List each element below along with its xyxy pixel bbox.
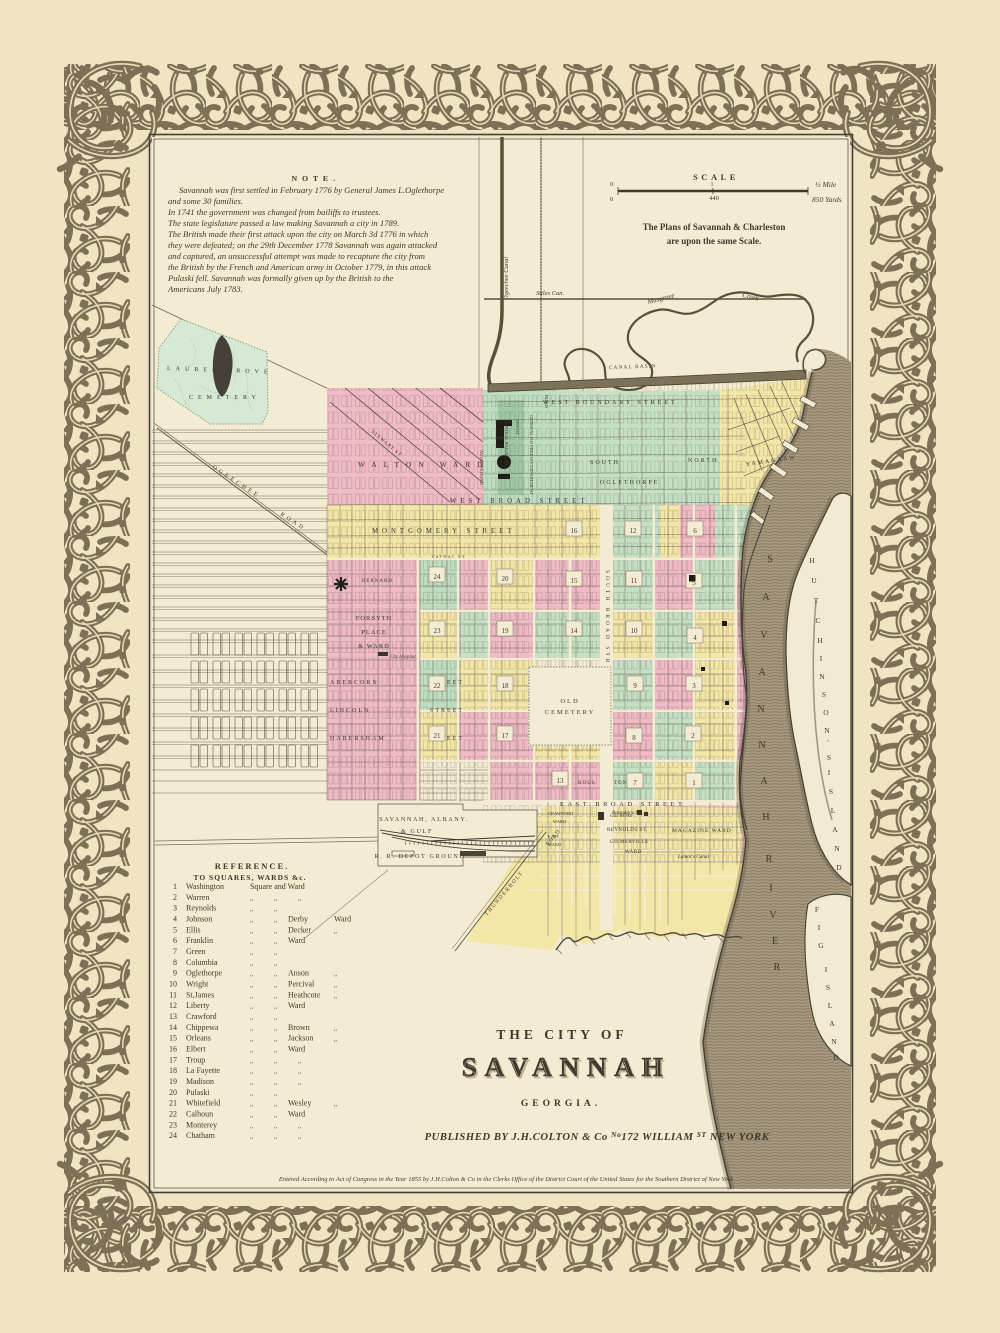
svg-text:24: 24: [169, 1131, 177, 1140]
svg-text:,,: ,,: [250, 1112, 254, 1118]
svg-text:GILMERVILLE: GILMERVILLE: [610, 840, 649, 845]
svg-text:17: 17: [169, 1055, 177, 1064]
svg-text:6: 6: [693, 527, 697, 535]
svg-text:Americans July 1783.: Americans July 1783.: [167, 284, 243, 294]
svg-text:E: E: [772, 936, 778, 947]
svg-text:SAVANNAH, ALBANY.: SAVANNAH, ALBANY.: [379, 816, 469, 823]
svg-text:17: 17: [502, 732, 510, 740]
svg-text:,,: ,,: [274, 1037, 278, 1043]
svg-text:ABERCORN: ABERCORN: [330, 680, 379, 686]
svg-text:Stiles Can.: Stiles Can.: [536, 290, 565, 297]
svg-text:,,: ,,: [250, 961, 254, 967]
svg-text:S: S: [822, 690, 826, 699]
svg-text:11: 11: [631, 577, 638, 585]
svg-text:,,: ,,: [334, 928, 338, 934]
svg-text:R: R: [774, 962, 781, 973]
svg-text:3: 3: [173, 904, 177, 913]
svg-text:Liberty: Liberty: [186, 1001, 210, 1010]
svg-text:20: 20: [169, 1088, 177, 1097]
svg-text:EAST BROAD STREET: EAST BROAD STREET: [560, 801, 685, 808]
svg-text:N O T E .: N O T E .: [291, 174, 336, 183]
svg-text:are upon the same Scale.: are upon the same Scale.: [667, 236, 762, 246]
svg-text:WARD: WARD: [553, 819, 567, 824]
svg-text:,,: ,,: [250, 1015, 254, 1021]
svg-text:½ Mile: ½ Mile: [815, 180, 837, 189]
svg-text:Ward: Ward: [288, 1109, 305, 1118]
svg-text:7: 7: [173, 947, 177, 956]
svg-text:CEMETERY: CEMETERY: [189, 395, 261, 401]
svg-text:V: V: [769, 910, 777, 921]
svg-text:R. R. DEPOT GROUND: R. R. DEPOT GROUND: [374, 853, 465, 860]
svg-text:Heathcote: Heathcote: [288, 990, 321, 999]
svg-text:19: 19: [502, 627, 510, 635]
svg-text:,,: ,,: [334, 993, 338, 999]
svg-text:2: 2: [173, 893, 177, 902]
svg-text:22: 22: [169, 1109, 177, 1118]
svg-text:,,: ,,: [274, 1102, 278, 1108]
svg-text:,,: ,,: [274, 950, 278, 956]
svg-text:Columbia: Columbia: [186, 958, 218, 967]
svg-text:DEPOT: DEPOT: [515, 420, 520, 435]
svg-text:Brown: Brown: [288, 1023, 310, 1032]
svg-text:23: 23: [434, 627, 442, 635]
svg-text:and some 30 families.: and some 30 families.: [168, 196, 243, 206]
svg-text:D: D: [833, 1053, 839, 1062]
svg-text:Ellis: Ellis: [186, 925, 201, 934]
svg-text:Wesley: Wesley: [288, 1099, 311, 1108]
svg-text:SCALE: SCALE: [693, 172, 739, 182]
svg-text:12: 12: [630, 527, 638, 535]
svg-text:La Fayette: La Fayette: [186, 1066, 220, 1075]
svg-text:R: R: [766, 854, 773, 865]
svg-text:GEORGIA.: GEORGIA.: [521, 1099, 601, 1109]
svg-text:Calhoun: Calhoun: [186, 1109, 213, 1118]
svg-text:H: H: [762, 812, 769, 823]
svg-text:FORSYTH: FORSYTH: [356, 615, 393, 622]
svg-text:5: 5: [173, 925, 177, 934]
svg-text:9: 9: [633, 682, 637, 690]
svg-text:L: L: [831, 806, 836, 815]
svg-text:,,: ,,: [274, 1069, 278, 1075]
svg-text:TO SQUARES, WARDS &c.: TO SQUARES, WARDS &c.: [193, 873, 306, 882]
svg-text:,,: ,,: [298, 1069, 302, 1075]
svg-text:Square and Ward: Square and Ward: [250, 882, 305, 891]
svg-text:SOUTH: SOUTH: [590, 460, 620, 466]
svg-text:15: 15: [571, 577, 579, 585]
svg-text:,,: ,,: [274, 1048, 278, 1054]
svg-text:SOUTH BROAD STR: SOUTH BROAD STR: [604, 570, 610, 665]
svg-text:18: 18: [169, 1066, 177, 1075]
svg-text:,,: ,,: [250, 918, 254, 924]
svg-text:PLACE: PLACE: [361, 629, 387, 636]
svg-text:In 1741 the government was cha: In 1741 the government was changed from …: [167, 207, 381, 217]
svg-text:,,: ,,: [298, 1058, 302, 1064]
svg-text:1: 1: [711, 182, 714, 188]
svg-text:14: 14: [169, 1023, 177, 1032]
svg-text:Jackson: Jackson: [288, 1034, 313, 1043]
svg-text:Whitefield: Whitefield: [186, 1099, 220, 1108]
svg-text:CENTRAL RAILROAD: CENTRAL RAILROAD: [504, 420, 509, 466]
svg-text:C: C: [815, 616, 820, 625]
svg-text:T: T: [814, 596, 819, 605]
svg-text:,,: ,,: [274, 1112, 278, 1118]
svg-text:REFERENCE.: REFERENCE.: [215, 861, 290, 871]
svg-text:,,: ,,: [250, 1048, 254, 1054]
svg-text:,,: ,,: [250, 1134, 254, 1140]
svg-text:St.James: St.James: [186, 990, 214, 999]
svg-text:they were defeated; on the 29t: they were defeated; on the 29th December…: [168, 240, 438, 250]
svg-text:4: 4: [693, 634, 697, 642]
svg-text:Elbert: Elbert: [186, 1045, 206, 1054]
svg-text:23: 23: [169, 1120, 177, 1129]
svg-text:BERNARD: BERNARD: [362, 579, 393, 584]
svg-text:N: N: [831, 1037, 837, 1046]
svg-text:V: V: [760, 630, 768, 641]
svg-text:S: S: [829, 787, 833, 796]
svg-text:Anson: Anson: [288, 969, 309, 978]
svg-text:,,: ,,: [250, 1091, 254, 1097]
svg-text:H: H: [817, 636, 823, 645]
svg-text:0: 0: [610, 196, 613, 203]
svg-text:,,: ,,: [250, 1004, 254, 1010]
svg-text:Pulaski: Pulaski: [186, 1088, 210, 1097]
svg-text:A: A: [762, 592, 770, 603]
svg-text:19: 19: [169, 1077, 177, 1086]
svg-text:CEMETERY: CEMETERY: [545, 709, 596, 716]
svg-text:10: 10: [631, 627, 639, 635]
svg-text:Washington: Washington: [186, 882, 224, 891]
svg-text:,,: ,,: [250, 972, 254, 978]
svg-text:,,: ,,: [250, 1037, 254, 1043]
svg-text:,,: ,,: [250, 993, 254, 999]
svg-text:Crawford: Crawford: [186, 1012, 217, 1021]
svg-text:4: 4: [173, 915, 177, 924]
svg-text:,,: ,,: [274, 1091, 278, 1097]
svg-text:A: A: [760, 776, 768, 787]
svg-text:,,: ,,: [250, 1102, 254, 1108]
svg-text:,,: ,,: [250, 950, 254, 956]
svg-text:10: 10: [169, 980, 177, 989]
svg-text:SAVANNAH: SAVANNAH: [462, 1051, 671, 1082]
svg-text:Decker: Decker: [288, 925, 311, 934]
svg-text:,,: ,,: [274, 1080, 278, 1086]
svg-text:N: N: [834, 844, 840, 853]
svg-text:,,: ,,: [250, 1080, 254, 1086]
svg-text:REYNOLDS ST.: REYNOLDS ST.: [607, 828, 648, 833]
svg-text:440: 440: [709, 195, 719, 202]
svg-text:MAGAZINE WARD: MAGAZINE WARD: [672, 828, 732, 834]
svg-text:,,: ,,: [334, 1102, 338, 1108]
svg-text:0: 0: [610, 181, 613, 188]
svg-text:,,: ,,: [298, 1080, 302, 1086]
svg-text:N: N: [757, 704, 764, 715]
svg-text:Boundary St.: Boundary St.: [612, 810, 641, 816]
svg-text:S: S: [826, 983, 830, 992]
svg-text:,,: ,,: [274, 1058, 278, 1064]
svg-text:,,: ,,: [250, 1123, 254, 1129]
svg-text:GENERAL R.R FREIGHT DEPARTMENT: GENERAL R.R FREIGHT DEPARTMENT: [529, 415, 534, 495]
svg-text:,,: ,,: [274, 928, 278, 934]
svg-text:,,: ,,: [274, 972, 278, 978]
svg-text:,,: ,,: [298, 896, 302, 902]
svg-text:,,: ,,: [298, 1134, 302, 1140]
svg-text:Ogeechee Canal: Ogeechee Canal: [503, 257, 510, 300]
svg-text:D: D: [836, 863, 842, 872]
svg-text:,,: ,,: [334, 983, 338, 989]
svg-text:WEST BROAD STREET: WEST BROAD STREET: [450, 498, 589, 505]
svg-text:City Hospital: City Hospital: [390, 655, 416, 660]
svg-text:A: A: [832, 825, 838, 834]
svg-text:H: H: [809, 556, 815, 565]
svg-text:HOUS: HOUS: [578, 781, 596, 786]
svg-text:and captured, an unsuccessful: and captured, an unsuccessful attempt wa…: [168, 251, 425, 261]
svg-text:Ward: Ward: [288, 1045, 305, 1054]
svg-text:WEST BOUNDARY STREET: WEST BOUNDARY STREET: [543, 400, 678, 406]
svg-text:Madison: Madison: [186, 1077, 214, 1086]
svg-text:O: O: [823, 708, 829, 717]
svg-text:7: 7: [633, 779, 637, 787]
svg-text:THE CITY OF: THE CITY OF: [496, 1027, 627, 1042]
svg-text:Ward: Ward: [288, 1001, 305, 1010]
svg-text:& WARD: & WARD: [358, 643, 390, 650]
svg-text:Lamar's Canal: Lamar's Canal: [677, 854, 710, 860]
svg-text:Oglethorpe: Oglethorpe: [186, 969, 222, 978]
svg-text:U: U: [811, 576, 817, 585]
svg-text:A: A: [829, 1019, 835, 1028]
svg-text:the British by the French and: the British by the French and American a…: [168, 262, 431, 272]
svg-text:Orleans: Orleans: [186, 1034, 211, 1043]
svg-text:EAST: EAST: [548, 834, 560, 839]
svg-text:,,: ,,: [250, 1026, 254, 1032]
svg-text:8: 8: [173, 958, 177, 967]
svg-text:,,: ,,: [250, 928, 254, 934]
svg-text:Johnson: Johnson: [186, 915, 212, 924]
svg-text:16: 16: [169, 1045, 177, 1054]
svg-text:WALTON WARD: WALTON WARD: [358, 460, 490, 469]
svg-text:Percival: Percival: [288, 980, 315, 989]
svg-text:I: I: [769, 883, 772, 894]
svg-text:,,: ,,: [334, 1037, 338, 1043]
svg-text:Ward: Ward: [288, 936, 305, 945]
svg-text:,,: ,,: [250, 983, 254, 989]
svg-text:S: S: [767, 554, 773, 565]
svg-text:L: L: [828, 1001, 833, 1010]
svg-text:,,: ,,: [274, 896, 278, 902]
svg-text:,,: ,,: [250, 907, 254, 913]
svg-text:Savannah was first settled in: Savannah was first settled in February 1…: [179, 185, 444, 195]
svg-text:2: 2: [691, 732, 695, 740]
svg-text:S: S: [827, 753, 831, 762]
svg-text:HABERSHAM: HABERSHAM: [330, 736, 386, 742]
svg-text:11: 11: [169, 990, 177, 999]
svg-text:13: 13: [557, 777, 565, 785]
svg-text:18: 18: [502, 682, 510, 690]
svg-text:,,: ,,: [274, 961, 278, 967]
svg-text:,,: ,,: [274, 907, 278, 913]
svg-text:,,: ,,: [250, 896, 254, 902]
svg-text:13: 13: [169, 1012, 177, 1021]
svg-text:,,: ,,: [274, 1015, 278, 1021]
svg-text:WARD: WARD: [625, 850, 642, 855]
svg-text:& GULF: & GULF: [401, 828, 433, 835]
svg-text:OLD: OLD: [560, 698, 579, 705]
svg-text:,,: ,,: [250, 1069, 254, 1075]
svg-text:,,: ,,: [274, 1026, 278, 1032]
svg-text:Chatham: Chatham: [186, 1131, 216, 1140]
svg-text:LINCOLN: LINCOLN: [330, 708, 370, 714]
svg-text:12: 12: [169, 1001, 177, 1010]
svg-text:N: N: [824, 726, 830, 735]
svg-text:1: 1: [692, 779, 696, 787]
svg-text:MONTGOMERY STREET: MONTGOMERY STREET: [372, 528, 515, 535]
svg-text:15: 15: [169, 1034, 177, 1043]
svg-text:,,: ,,: [334, 972, 338, 978]
svg-text:,,: ,,: [250, 1058, 254, 1064]
svg-text:Pulaski fell. Savannah was for: Pulaski fell. Savannah was formally give…: [167, 273, 394, 283]
svg-text:,,: ,,: [334, 1026, 338, 1032]
svg-text:850 Yards: 850 Yards: [812, 195, 842, 204]
svg-text:,,: ,,: [274, 939, 278, 945]
svg-text:The British made their first a: The British made their first attack upon…: [168, 229, 428, 239]
svg-text:14: 14: [571, 627, 579, 635]
svg-text:Franklin: Franklin: [186, 936, 213, 945]
svg-text:ROAD: ROAD: [544, 395, 549, 409]
svg-text:,,: ,,: [274, 918, 278, 924]
svg-text:F: F: [815, 905, 819, 914]
svg-text:Chippewa: Chippewa: [186, 1023, 219, 1032]
svg-text:,,: ,,: [274, 993, 278, 999]
svg-text:Green: Green: [186, 947, 206, 956]
svg-text:Wright: Wright: [186, 980, 209, 989]
svg-text:OGLETHORPE: OGLETHORPE: [600, 480, 659, 486]
svg-text:Ward: Ward: [334, 915, 351, 924]
svg-text:,,: ,,: [274, 1004, 278, 1010]
svg-text:A: A: [758, 667, 766, 678]
svg-text:,,: ,,: [274, 1123, 278, 1129]
svg-text:8: 8: [632, 734, 636, 742]
svg-text:AUGUSTA ROAD: AUGUSTA ROAD: [479, 450, 484, 486]
svg-text:CRAWFORD: CRAWFORD: [548, 811, 574, 816]
svg-text:,,: ,,: [274, 983, 278, 989]
svg-text:Troup: Troup: [186, 1055, 205, 1064]
svg-text:6: 6: [173, 936, 177, 945]
svg-text:9: 9: [173, 969, 177, 978]
svg-text:Warren: Warren: [186, 893, 209, 902]
svg-text:,,: ,,: [274, 1134, 278, 1140]
svg-text:G: G: [818, 941, 824, 950]
svg-text:Entered According to Act of Co: Entered According to Act of Congress in …: [278, 1176, 733, 1183]
svg-text:PUBLISHED BY J.H.COLTON & Co N: PUBLISHED BY J.H.COLTON & Co No172 WILLI…: [425, 1130, 770, 1143]
svg-text:21: 21: [434, 732, 442, 740]
svg-text:WARD: WARD: [548, 842, 562, 847]
svg-text:TON: TON: [614, 781, 627, 786]
svg-text:Reynolds: Reynolds: [186, 904, 216, 913]
svg-text:The state legislature passed a: The state legislature passed a law makin…: [168, 218, 399, 228]
svg-text:Derby: Derby: [288, 915, 308, 924]
svg-text:,,: ,,: [298, 1123, 302, 1129]
svg-text:24: 24: [434, 573, 442, 581]
svg-text:16: 16: [571, 527, 579, 535]
svg-text:3: 3: [692, 682, 696, 690]
svg-text:21: 21: [169, 1099, 177, 1108]
svg-text:22: 22: [434, 682, 442, 690]
svg-text:N: N: [758, 740, 765, 751]
svg-text:NORTH: NORTH: [688, 458, 718, 464]
svg-text:20: 20: [502, 575, 510, 583]
svg-text:1: 1: [173, 882, 177, 891]
svg-text:N: N: [819, 672, 825, 681]
svg-text:,,: ,,: [250, 939, 254, 945]
svg-text:STREET: STREET: [430, 708, 464, 714]
svg-text:Monterey: Monterey: [186, 1120, 217, 1129]
svg-text:The Plans of Savannah & Charle: The Plans of Savannah & Charleston: [643, 222, 786, 232]
